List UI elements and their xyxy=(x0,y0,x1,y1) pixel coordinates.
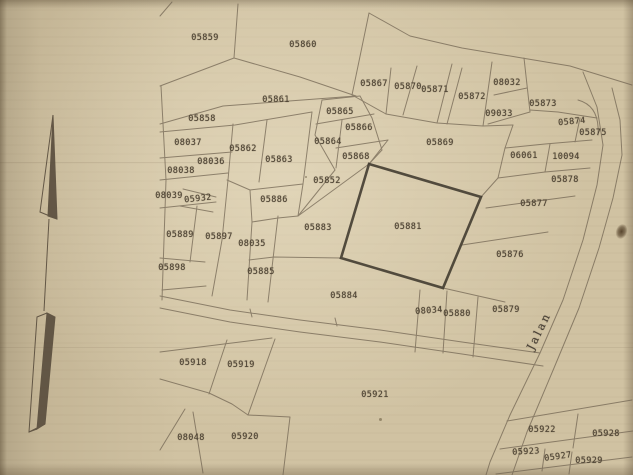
parcel-label: 08034 xyxy=(415,305,443,317)
parcel-label: 08037 xyxy=(174,138,202,148)
parcel-label: 05877 xyxy=(520,199,548,209)
parcel-label: 05861 xyxy=(262,95,290,105)
parcel-label: 05862 xyxy=(229,144,257,154)
parcel-label: 05928 xyxy=(592,429,620,439)
parcel-label: 05889 xyxy=(166,230,194,240)
parcel-label: 05898 xyxy=(158,263,186,273)
parcel-label: 05866 xyxy=(345,123,373,133)
parcel-label: 05923 xyxy=(512,446,540,457)
parcel-label: 05865 xyxy=(326,107,354,117)
parcel-label: 05921 xyxy=(361,390,389,400)
parcel-label: 08035 xyxy=(238,239,266,249)
parcel-label: 05922 xyxy=(528,425,556,435)
parcel-label: 05897 xyxy=(205,232,233,242)
parcel-label: 05876 xyxy=(496,250,524,260)
parcel-label: 10094 xyxy=(552,152,580,162)
parcel-label: 05869 xyxy=(426,138,454,148)
parcel-label: 05870 xyxy=(394,82,422,92)
parcel-label: 05872 xyxy=(458,92,486,102)
parcel-label: 05883 xyxy=(304,223,332,233)
parcel-label: 05859 xyxy=(191,33,219,43)
parcel-label: 05885 xyxy=(247,267,275,277)
parcel-label: 05884 xyxy=(330,291,358,301)
parcel-label: 05873 xyxy=(529,99,557,109)
parcel-label: 05929 xyxy=(575,456,603,466)
parcel-label: 05875 xyxy=(579,128,607,138)
parcel-label: 05860 xyxy=(289,40,317,50)
parcel-label: 05919 xyxy=(227,360,255,370)
parcel-label: 05932 xyxy=(184,193,212,206)
parcel-label: 06061 xyxy=(510,151,538,161)
parcel-label: 05868 xyxy=(342,152,370,162)
parcel-label: 05871 xyxy=(421,85,449,95)
parcel-label: 05881 xyxy=(394,222,422,232)
parcel-label: 05852 xyxy=(313,176,341,186)
parcel-label: 05879 xyxy=(492,305,520,315)
parcel-label: 05863 xyxy=(265,155,293,165)
parcel-label: 05874 xyxy=(558,116,586,128)
parcel-label: 05867 xyxy=(360,79,388,89)
parcel-label: 05918 xyxy=(179,358,207,368)
parcel-label: 05878 xyxy=(551,175,579,185)
parcel-label: 05927 xyxy=(544,450,573,464)
parcel-label: 08036 xyxy=(197,157,225,167)
parcel-label: 08048 xyxy=(177,433,205,443)
parcel-label: 08038 xyxy=(167,166,195,176)
parcel-label: 09033 xyxy=(485,109,513,119)
parcel-label: 05886 xyxy=(260,195,288,205)
parcel-labels: 0585905860058610585808037058620586308036… xyxy=(0,0,633,475)
parcel-label: 05920 xyxy=(231,432,259,442)
parcel-label: 05880 xyxy=(443,309,471,319)
parcel-label: 08039 xyxy=(155,191,183,201)
parcel-label: 05864 xyxy=(314,137,342,147)
parcel-label: 08032 xyxy=(493,78,521,88)
scanned-cadastral-map: { "map": { "road_label": "Jalan", "color… xyxy=(0,0,633,475)
parcel-label: 05858 xyxy=(188,114,216,124)
